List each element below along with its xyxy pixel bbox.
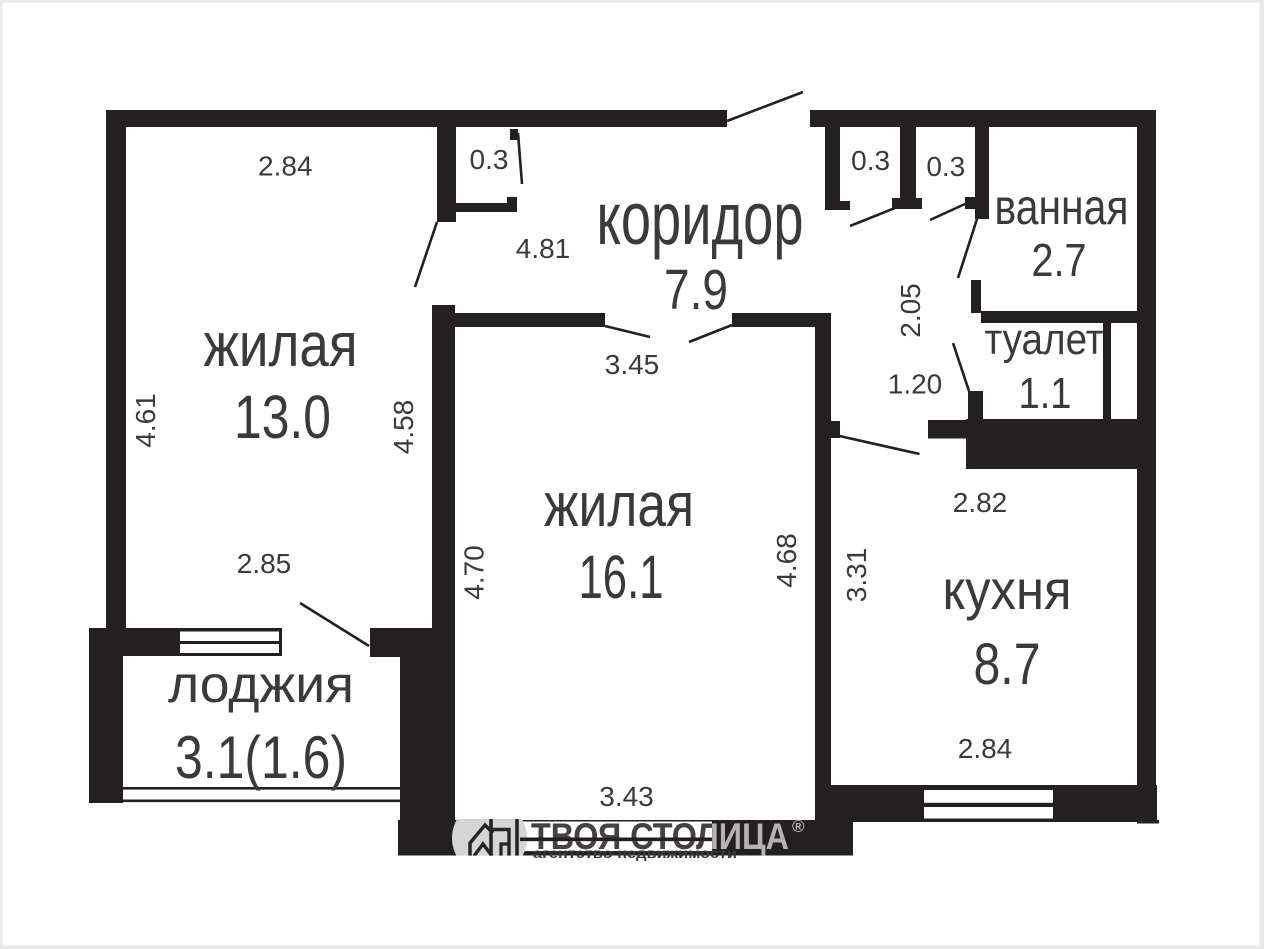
svg-text:0.3: 0.3 [851,145,890,176]
svg-text:коридор: коридор [597,177,804,260]
svg-text:лоджия: лоджия [168,656,354,714]
svg-text:3.31: 3.31 [841,548,872,603]
svg-text:3.45: 3.45 [605,349,660,380]
svg-text:2.85: 2.85 [237,548,292,579]
svg-text:туалет: туалет [985,315,1104,364]
svg-text:13.0: 13.0 [234,383,331,451]
svg-text:2.05: 2.05 [895,283,926,338]
svg-text:0.3: 0.3 [470,144,509,175]
svg-text:2.84: 2.84 [958,733,1013,764]
svg-text:2.82: 2.82 [953,487,1008,518]
svg-text:4.68: 4.68 [771,533,802,588]
svg-text:3.1(1.6): 3.1(1.6) [175,724,347,791]
svg-text:кухня: кухня [943,558,1072,621]
svg-text:7.9: 7.9 [664,258,728,322]
svg-text:®: ® [792,817,805,836]
svg-text:3.43: 3.43 [599,781,654,812]
svg-text:8.7: 8.7 [974,632,1041,697]
svg-text:1.20: 1.20 [888,369,943,400]
svg-text:16.1: 16.1 [579,543,664,611]
svg-text:агентство недвижимости: агентство недвижимости [533,846,737,861]
svg-text:жилая: жилая [204,311,358,380]
svg-text:4.70: 4.70 [459,545,490,600]
svg-text:4.58: 4.58 [388,400,419,455]
svg-text:4.81: 4.81 [516,233,571,264]
svg-text:2.84: 2.84 [258,151,313,182]
svg-text:4.61: 4.61 [130,393,161,448]
svg-text:1.1: 1.1 [1019,369,1072,418]
svg-text:0.3: 0.3 [926,151,965,182]
svg-text:2.7: 2.7 [1032,234,1087,286]
svg-text:ванная: ванная [995,179,1129,235]
svg-text:жилая: жилая [544,471,694,540]
